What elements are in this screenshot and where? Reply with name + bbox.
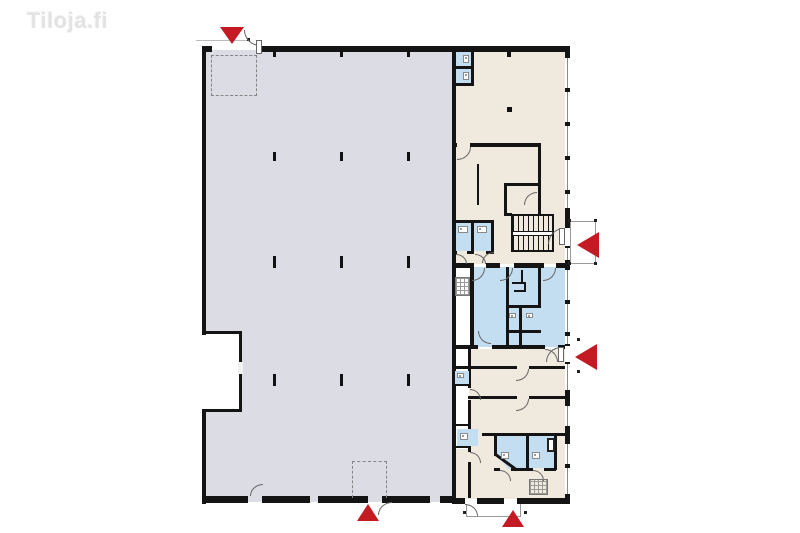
- toilet-fixture: [463, 55, 469, 63]
- wall: [538, 143, 541, 215]
- wall: [504, 183, 507, 215]
- partition-wall: [454, 424, 470, 426]
- wall: [470, 143, 541, 147]
- door-leaf: [558, 347, 564, 362]
- toilet-fixture: [458, 226, 468, 233]
- wall: [452, 345, 478, 349]
- stair-landing-line: [513, 231, 552, 236]
- sink-fixture: [509, 313, 516, 318]
- wall: [455, 498, 465, 504]
- column-marker: [507, 107, 512, 112]
- wall-dashed-segment: [440, 496, 454, 503]
- window: [565, 444, 570, 464]
- window: [565, 364, 570, 390]
- reserved-area-outline: [211, 55, 257, 96]
- wall: [556, 263, 568, 268]
- window: [565, 270, 570, 300]
- wall: [504, 213, 512, 216]
- wall: [504, 183, 541, 186]
- wall-dashed-segment: [204, 496, 248, 503]
- window: [565, 336, 570, 344]
- toilet-fixture: [532, 452, 540, 459]
- window: [565, 58, 570, 88]
- door-swing: [465, 504, 478, 516]
- building-notch: [200, 333, 241, 412]
- column-marker: [273, 152, 276, 161]
- entrance-arrow-icon-south-hall: [357, 504, 379, 521]
- toilet-fixture: [460, 433, 468, 440]
- wall: [202, 331, 242, 334]
- column-marker: [507, 52, 511, 57]
- wall: [260, 46, 568, 52]
- column-marker: [407, 256, 410, 268]
- wall: [519, 305, 522, 333]
- column-marker: [273, 256, 276, 268]
- entrance-arrow-icon-east-lower: [575, 344, 597, 370]
- wall: [526, 433, 529, 470]
- guide-dot: [568, 262, 571, 265]
- wall: [529, 396, 566, 399]
- guide-dot: [577, 338, 580, 341]
- wall: [519, 330, 522, 346]
- window: [565, 160, 570, 190]
- wall: [491, 220, 494, 254]
- wall: [511, 468, 533, 471]
- shower-screen-wall: [514, 290, 526, 292]
- wall: [452, 46, 456, 504]
- window: [565, 194, 570, 208]
- guide-dot: [577, 370, 580, 373]
- column-marker: [407, 52, 410, 57]
- reserved-area-outline: [352, 461, 387, 498]
- staircase: [511, 214, 554, 252]
- wall: [517, 498, 568, 504]
- site-logo: Tiloja.fi: [27, 8, 108, 34]
- wall: [538, 267, 541, 308]
- wall: [477, 498, 504, 504]
- wall: [529, 366, 566, 369]
- window: [565, 126, 570, 156]
- column-marker: [407, 374, 410, 386]
- toilet-fixture: [463, 72, 469, 80]
- sink-fixture: [526, 313, 533, 318]
- wall: [467, 251, 473, 254]
- shower-screen-wall: [521, 270, 523, 282]
- guide-dot: [568, 219, 571, 222]
- floor-hatch: [529, 479, 548, 495]
- column-marker: [340, 374, 343, 386]
- floor-plan-canvas: Tiloja.fi: [0, 0, 800, 533]
- shower-fixture: [547, 438, 555, 452]
- door-leaf: [256, 40, 262, 54]
- column-marker: [273, 52, 276, 57]
- column-marker: [340, 52, 343, 57]
- wall: [202, 409, 206, 504]
- door-opening: [238, 362, 243, 374]
- entrance-arrow-icon-south-wing: [502, 510, 524, 527]
- wall: [455, 366, 517, 369]
- wall: [202, 46, 206, 335]
- window: [565, 406, 570, 426]
- partition-wall: [454, 446, 470, 448]
- wall: [468, 462, 471, 498]
- toilet-fixture: [501, 452, 509, 459]
- door-swing: [378, 502, 392, 515]
- column-marker: [273, 374, 276, 386]
- wall: [506, 330, 541, 333]
- door-opening: [565, 346, 570, 362]
- window: [565, 92, 570, 122]
- window: [565, 304, 570, 332]
- toilet-fixture: [457, 373, 464, 378]
- wall: [486, 263, 500, 268]
- wall: [202, 409, 242, 412]
- lift-hatch: [455, 277, 470, 296]
- toilet-fixture: [477, 226, 487, 233]
- wall-dashed-segment: [262, 496, 310, 503]
- wall: [544, 468, 556, 471]
- guide-dot: [524, 511, 527, 514]
- column-marker: [407, 152, 410, 161]
- entrance-arrow-icon-east-upper: [577, 232, 599, 258]
- guide-dot: [594, 262, 597, 265]
- main-hall-area: [204, 50, 454, 502]
- office-area-lower: [456, 349, 566, 499]
- wall: [471, 48, 474, 86]
- entrance-arrow-icon-north: [220, 27, 244, 44]
- window: [565, 468, 570, 494]
- wall: [452, 83, 474, 86]
- partition-wall: [454, 384, 469, 386]
- door-leaf: [559, 228, 565, 245]
- column-marker: [340, 152, 343, 161]
- guide-dot: [594, 219, 597, 222]
- column-marker: [340, 256, 343, 268]
- wall: [506, 305, 541, 308]
- partition-wall: [477, 164, 479, 205]
